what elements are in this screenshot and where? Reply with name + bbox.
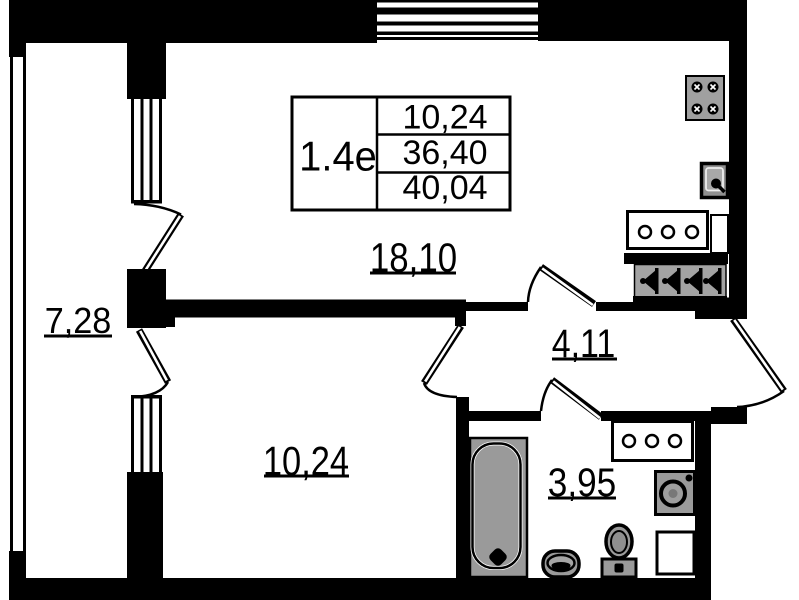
svg-text:10,24: 10,24 [402,99,487,137]
svg-text:40,04: 40,04 [402,169,487,207]
svg-text:36,40: 36,40 [402,134,487,172]
svg-text:10,24: 10,24 [263,439,349,484]
svg-text:1.4e: 1.4e [299,133,377,180]
